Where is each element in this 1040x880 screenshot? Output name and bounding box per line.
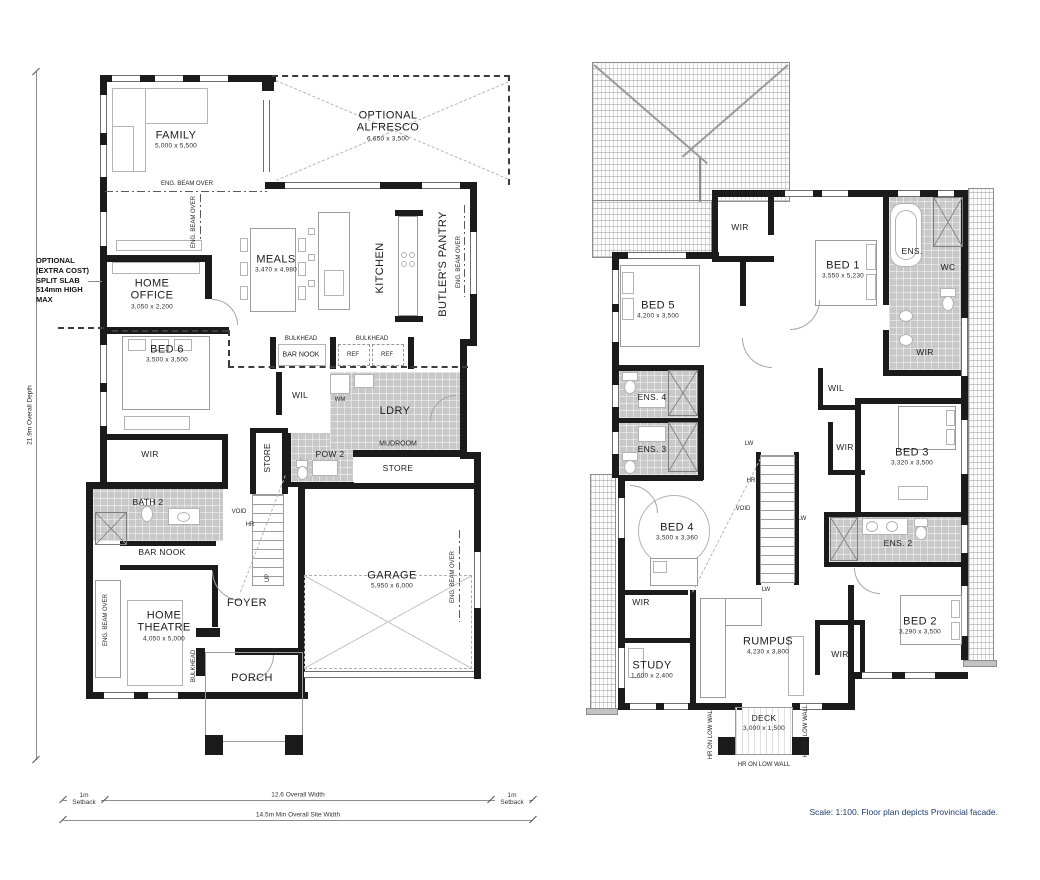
pillow — [946, 429, 955, 445]
room-label-ens1: ENS. — [901, 247, 922, 257]
wall — [860, 620, 865, 675]
wall — [818, 368, 823, 410]
spacer — [300, 458, 302, 460]
garage-door — [304, 671, 474, 678]
cooktop-icon — [409, 261, 415, 267]
roof-hatch — [592, 200, 712, 258]
floor-plan-sheet: FAMILY5,000 x 5,500 OPTIONAL ALFRESCO6,6… — [0, 0, 1040, 880]
wall — [270, 337, 276, 369]
wall — [92, 482, 224, 489]
split-slab-line — [228, 366, 468, 368]
window — [155, 75, 183, 82]
label-void: VOID — [736, 506, 751, 512]
window — [612, 270, 619, 304]
site-width-label: 14.5m Min Overall Site Width — [254, 812, 342, 819]
toilet-icon — [297, 466, 308, 480]
wall — [618, 638, 692, 643]
wall — [690, 590, 696, 705]
room-label-bed6: BED 63,500 x 3,500 — [146, 344, 188, 365]
room-label-wir-entry: WIR — [731, 223, 748, 233]
window — [112, 75, 140, 82]
room-label-study: STUDY1,600 x 2,400 — [631, 660, 673, 681]
wall — [304, 483, 476, 489]
wall — [828, 422, 833, 474]
wall — [815, 620, 865, 625]
label-eng-beam: ENG. BEAM OVER — [103, 594, 109, 646]
label-eng-beam: ENG. BEAM OVER — [456, 236, 462, 288]
window — [470, 232, 477, 294]
room-label-ens2: ENS. 2 — [884, 539, 913, 549]
window — [628, 252, 686, 259]
label-hr: HR — [246, 522, 255, 528]
room-label-meals: MEALS3,470 x 4,980 — [255, 254, 297, 275]
deck-post — [718, 737, 735, 755]
roof-ridge — [699, 158, 701, 202]
window — [100, 95, 107, 133]
cooktop-icon — [401, 261, 407, 267]
room-label-bed4: BED 43,500 x 3,360 — [656, 522, 698, 543]
stool — [308, 280, 315, 287]
wall — [276, 372, 282, 415]
tv-unit — [116, 240, 202, 251]
wall — [408, 337, 414, 369]
pillow — [951, 622, 960, 640]
window — [148, 692, 178, 699]
toilet-icon — [624, 380, 636, 394]
desk — [898, 486, 928, 500]
wall — [460, 339, 467, 455]
window — [100, 345, 107, 383]
roof-hatch — [592, 62, 790, 202]
pillow — [946, 410, 955, 426]
roof-strip — [590, 474, 616, 710]
wall — [828, 470, 865, 475]
room-label-butlers-pantry: BUTLER'S PANTRY — [437, 211, 449, 317]
toilet-icon — [141, 506, 153, 522]
basin-icon — [866, 521, 878, 532]
window — [474, 552, 481, 608]
roof-strip — [968, 188, 994, 662]
wall — [196, 648, 205, 676]
window — [100, 145, 107, 177]
label-up: UP — [265, 574, 271, 582]
label-hr-low-wall: HR ON LOW WALL — [803, 705, 809, 757]
toilet-icon — [915, 526, 927, 540]
label-bulkhead: BULKHEAD — [356, 336, 388, 342]
label-hr-low-wall: HR ON LOW WALL — [708, 707, 714, 759]
room-label-bed1: BED 13,550 x 5,230 — [822, 260, 864, 281]
window — [618, 648, 625, 688]
room-label-porch: PORCH — [231, 672, 273, 684]
room-label-wir-master: WIR — [916, 348, 933, 358]
stairs — [252, 494, 284, 586]
wall — [205, 255, 212, 299]
overall-depth-label: 21.9m Overall Depth — [27, 385, 34, 445]
wall — [883, 370, 968, 376]
washing-machine-icon — [330, 374, 350, 394]
shower-icon — [668, 370, 698, 416]
window — [612, 312, 619, 342]
door-arc — [854, 568, 880, 594]
sink-icon — [324, 270, 344, 296]
dimension-line-depth — [36, 72, 37, 760]
wall — [250, 428, 256, 494]
desk — [112, 262, 200, 274]
window — [612, 385, 619, 407]
wall — [107, 255, 209, 262]
wall — [86, 482, 93, 699]
sofa-chaise — [112, 126, 134, 172]
room-label-garage: GARAGE5,950 x 6,000 — [367, 570, 416, 591]
split-slab-line — [112, 330, 228, 332]
room-label-deck: DECK3,000 x 1,500 — [743, 714, 785, 732]
cooktop-icon — [401, 252, 407, 258]
shower-icon — [95, 512, 127, 545]
wall — [395, 316, 423, 322]
room-label-wir-mid: WIR — [836, 443, 853, 453]
roof-cap — [586, 708, 618, 715]
label-hr-low-wall: HR ON LOW WALL — [738, 762, 790, 768]
basin-icon — [899, 310, 913, 322]
room-label-mudroom: MUDROOM — [379, 441, 417, 448]
chair — [298, 262, 306, 276]
label-void: VOID — [232, 509, 247, 515]
sofa — [700, 598, 726, 698]
wall — [330, 337, 336, 369]
setback-label-left: 1m Setback — [67, 792, 101, 806]
wall — [120, 565, 216, 570]
room-label-ens3: ENS. 3 — [638, 445, 667, 455]
window — [961, 525, 968, 553]
shower-icon — [830, 517, 858, 561]
window — [961, 586, 968, 636]
wall — [120, 541, 216, 546]
door-arc — [790, 300, 820, 330]
room-label-wil: WIL — [828, 384, 844, 394]
pillow — [866, 274, 876, 300]
window — [961, 420, 968, 474]
room-label-bed3: BED 33,320 x 3,500 — [891, 447, 933, 468]
label-wm: WM — [335, 397, 346, 403]
label-lw: LW — [745, 441, 754, 447]
wall — [262, 75, 274, 91]
pillow — [951, 600, 960, 618]
chair — [240, 238, 248, 252]
label-lw: LW — [762, 587, 771, 593]
dimension-line-width — [63, 800, 533, 801]
room-label-wir-bed4: WIR — [632, 598, 649, 608]
wall — [848, 585, 854, 672]
toilet-icon — [624, 460, 636, 474]
window — [905, 672, 935, 679]
wall — [815, 620, 820, 675]
label-bulkhead: BULKHEAD — [285, 336, 317, 342]
window — [285, 182, 380, 189]
overall-width-label: 12.6 Overall Width — [269, 792, 326, 799]
shower-icon — [668, 422, 698, 472]
label-bar-nook-upper: BAR NOOK — [283, 352, 320, 359]
chair — [240, 286, 248, 300]
vanity — [638, 426, 666, 442]
room-label-store: STORE — [383, 464, 414, 474]
room-label-bed2: BED 23,290 x 3,500 — [899, 616, 941, 637]
wall — [818, 405, 858, 410]
label-ref: REF — [381, 352, 393, 358]
wall — [855, 398, 968, 404]
wall — [107, 434, 227, 440]
window — [100, 212, 107, 246]
label-eng-beam: ENG. BEAM OVER — [161, 181, 213, 187]
stool — [308, 228, 315, 235]
alfresco-dashed-edge — [272, 75, 510, 77]
cooktop-icon — [409, 252, 415, 258]
pillow — [866, 244, 876, 270]
room-label-home-office: HOME OFFICE3,050 x 2,200 — [122, 278, 182, 311]
pillow — [128, 339, 146, 351]
pillow — [653, 561, 667, 573]
laundry-tub-icon — [354, 374, 374, 388]
eng-beam-line — [105, 191, 267, 192]
shower-icon — [933, 197, 963, 247]
room-label-kitchen: KITCHEN — [374, 242, 386, 293]
room-label-wil: WIL — [292, 391, 308, 401]
wall — [222, 434, 228, 489]
door-arc — [212, 299, 238, 325]
basin-icon — [899, 334, 913, 346]
basin-icon — [886, 521, 898, 532]
label-lw: LW — [798, 516, 807, 522]
label-ref: REF — [347, 352, 359, 358]
chair — [298, 286, 306, 300]
window — [104, 692, 134, 699]
window — [618, 498, 625, 538]
basin-icon — [177, 512, 190, 522]
window — [100, 392, 107, 426]
room-label-bar-nook: BAR NOOK — [138, 548, 185, 558]
window — [938, 190, 954, 197]
label-hr: HR — [747, 478, 756, 484]
roof-cap — [963, 660, 997, 667]
window — [664, 703, 688, 710]
window — [898, 190, 920, 197]
door-arc — [742, 338, 772, 368]
window — [862, 672, 892, 679]
room-label-bed5: BED 54,200 x 3,500 — [637, 300, 679, 321]
window — [200, 75, 228, 82]
chair — [298, 238, 306, 252]
split-slab-line — [228, 330, 230, 366]
wall — [618, 475, 703, 481]
wall — [618, 590, 688, 595]
scale-note: Scale: 1:100. Floor plan depicts Provinc… — [780, 807, 998, 817]
wall — [855, 398, 861, 515]
room-label-store-stairs: STORE — [262, 443, 272, 472]
powder-vanity — [312, 460, 338, 476]
room-label-family: FAMILY5,000 x 5,500 — [155, 130, 197, 151]
porch-post — [285, 735, 303, 755]
room-label-wir: WIR — [141, 450, 158, 460]
window — [630, 703, 656, 710]
room-label-ens4: ENS. 4 — [638, 393, 667, 403]
label-eng-beam: ENG. BEAM OVER — [191, 196, 197, 248]
wall — [740, 256, 746, 306]
room-label-foyer: FOYER — [227, 597, 267, 609]
dresser — [124, 416, 190, 430]
stool — [308, 254, 315, 261]
pillow — [622, 272, 634, 294]
room-label-rumpus: RUMPUS4,230 x 3,800 — [743, 636, 793, 657]
room-label-ldry: LDRY — [380, 405, 411, 417]
window — [961, 318, 968, 376]
split-slab-line — [58, 327, 104, 329]
window — [263, 100, 270, 172]
alfresco-dashed-edge — [508, 75, 510, 185]
wall — [768, 195, 774, 235]
setback-label-right: 1m Setback — [495, 792, 529, 806]
wall — [712, 195, 718, 261]
window — [612, 432, 619, 454]
room-label-alfresco: OPTIONAL ALFRESCO6,650 x 3,500 — [342, 110, 434, 143]
window — [822, 190, 848, 197]
porch-post — [205, 735, 223, 755]
label-bulkhead-vertical: BULKHEAD — [191, 650, 197, 682]
eng-beam-line — [464, 205, 465, 297]
toilet-icon — [942, 296, 954, 311]
room-label-home-theatre: HOME THEATRE4,050 x 5,000 — [126, 610, 202, 643]
split-slab-note: OPTIONAL (EXTRA COST) SPLIT SLAB 514mm H… — [36, 256, 94, 305]
dimension-line-site — [63, 820, 533, 821]
room-label-wir-bed2: WIR — [831, 650, 848, 660]
wall — [828, 562, 968, 567]
door-arc — [630, 485, 658, 513]
room-label-pow2: POW 2 — [316, 450, 345, 460]
pillow — [622, 298, 634, 320]
label-eng-beam: ENG. BEAM OVER — [450, 551, 456, 603]
room-label-wc: WC — [941, 263, 956, 273]
room-label-bath2: BATH 2 — [133, 498, 164, 508]
chair — [240, 262, 248, 276]
window — [422, 182, 460, 189]
stairs — [760, 455, 795, 583]
window — [785, 190, 813, 197]
